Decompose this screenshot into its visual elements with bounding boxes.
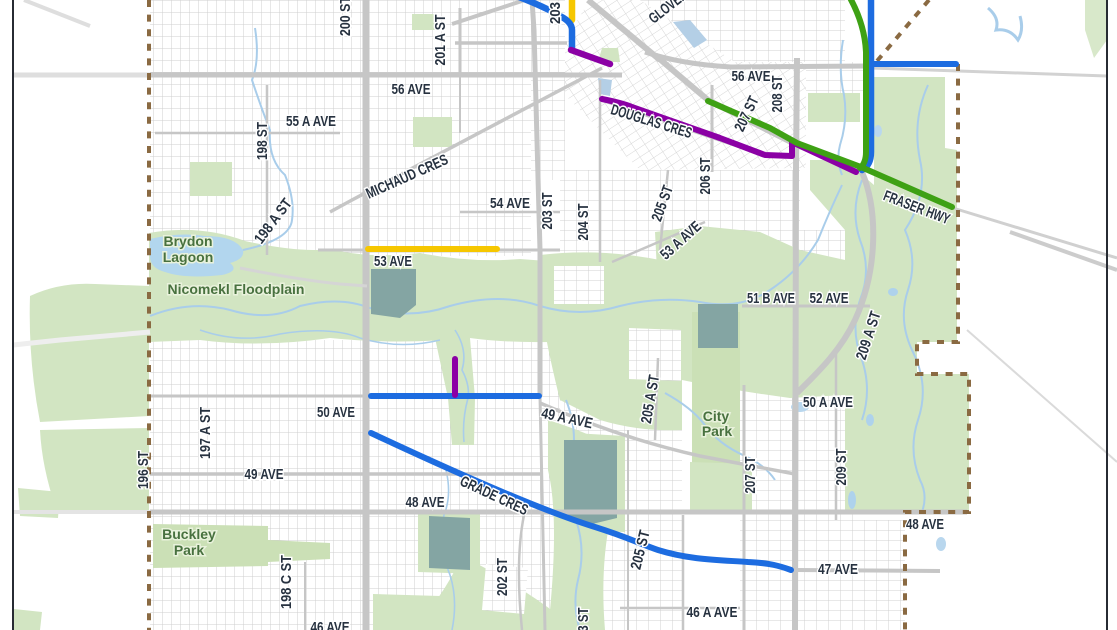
svg-text:208 ST: 208 ST: [769, 76, 786, 113]
svg-text:196 ST: 196 ST: [135, 451, 152, 489]
svg-text:198 C ST: 198 C ST: [278, 555, 295, 609]
svg-text:198 ST: 198 ST: [254, 122, 271, 160]
svg-text:197 A ST: 197 A ST: [197, 407, 214, 459]
svg-text:49 AVE: 49 AVE: [245, 466, 284, 483]
svg-text:206 ST: 206 ST: [697, 158, 714, 195]
svg-text:Buckley: Buckley: [162, 526, 216, 542]
svg-text:City: City: [703, 408, 730, 424]
svg-text:51 B AVE: 51 B AVE: [747, 290, 795, 307]
svg-text:50 AVE: 50 AVE: [317, 404, 355, 421]
svg-text:56 AVE: 56 AVE: [392, 81, 431, 98]
svg-text:55 A AVE: 55 A AVE: [286, 113, 336, 130]
svg-text:52 AVE: 52 AVE: [810, 290, 849, 307]
svg-text:Brydon: Brydon: [164, 233, 213, 249]
svg-text:209 ST: 209 ST: [833, 449, 850, 486]
svg-text:48 AVE: 48 AVE: [406, 494, 445, 511]
svg-text:Park: Park: [702, 423, 733, 439]
svg-text:48 AVE: 48 AVE: [906, 516, 944, 533]
svg-text:203: 203: [547, 2, 564, 24]
svg-text:Park: Park: [174, 542, 205, 558]
svg-text:46 AVE: 46 AVE: [311, 619, 350, 630]
svg-text:47 AVE: 47 AVE: [818, 561, 858, 578]
svg-text:203 ST: 203 ST: [575, 608, 592, 630]
svg-text:53 AVE: 53 AVE: [374, 253, 412, 270]
svg-text:Lagoon: Lagoon: [163, 249, 214, 265]
svg-text:207 ST: 207 ST: [742, 457, 759, 494]
svg-text:200 ST: 200 ST: [337, 0, 354, 36]
svg-text:201 A ST: 201 A ST: [432, 15, 449, 66]
svg-text:50 A AVE: 50 A AVE: [803, 394, 853, 411]
svg-text:46 A AVE: 46 A AVE: [687, 604, 738, 621]
svg-text:202 ST: 202 ST: [494, 558, 511, 596]
svg-text:56 AVE: 56 AVE: [732, 68, 771, 85]
svg-text:54 AVE: 54 AVE: [490, 195, 530, 212]
svg-text:Nicomekl Floodplain: Nicomekl Floodplain: [168, 281, 305, 297]
svg-text:204 ST: 204 ST: [575, 204, 592, 241]
svg-text:203 ST: 203 ST: [539, 193, 556, 230]
